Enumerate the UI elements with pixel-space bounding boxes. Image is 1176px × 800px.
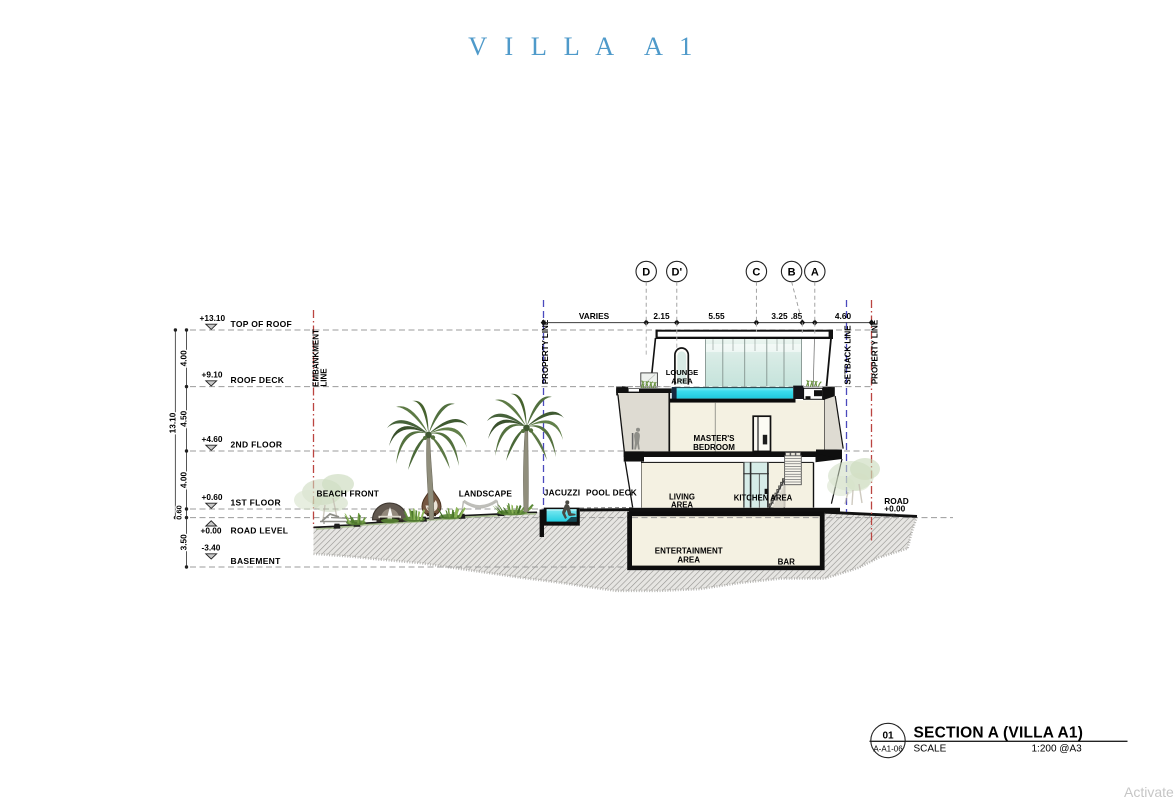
svg-text:JACUZZI: JACUZZI — [544, 488, 580, 498]
svg-text:ROAD LEVEL: ROAD LEVEL — [231, 526, 289, 536]
svg-text:4.60: 4.60 — [835, 311, 852, 321]
svg-text:KITCHEN AREA: KITCHEN AREA — [734, 494, 793, 503]
svg-text:0.60: 0.60 — [175, 505, 184, 519]
svg-text:Activate W: Activate W — [1124, 784, 1176, 800]
svg-text:SETBACK LINE: SETBACK LINE — [844, 325, 853, 385]
svg-text:1:200 @A3: 1:200 @A3 — [1032, 744, 1083, 755]
svg-text:+13.10: +13.10 — [200, 313, 226, 323]
svg-text:AREA: AREA — [671, 500, 693, 509]
svg-text:3.50: 3.50 — [179, 534, 189, 551]
svg-text:MASTER'S: MASTER'S — [693, 434, 735, 443]
svg-text:4.00: 4.00 — [179, 472, 189, 489]
svg-text:BAR: BAR — [778, 557, 796, 566]
svg-text:4.00: 4.00 — [179, 350, 189, 367]
svg-text:V I L L A A 1: V I L L A A 1 — [468, 31, 698, 61]
svg-text:BEACH FRONT: BEACH FRONT — [317, 488, 380, 498]
svg-text:SECTION A (VILLA A1): SECTION A (VILLA A1) — [914, 724, 1084, 741]
svg-text:PROPERTY LINE: PROPERTY LINE — [541, 319, 550, 384]
svg-text:+0.00: +0.00 — [201, 526, 222, 536]
svg-text:SCALE: SCALE — [914, 744, 947, 755]
svg-text:PROPERTY LINE: PROPERTY LINE — [871, 319, 880, 384]
svg-text:1ST FLOOR: 1ST FLOOR — [231, 497, 281, 507]
svg-text:-3.40: -3.40 — [202, 542, 221, 552]
svg-text:BEDROOM: BEDROOM — [693, 443, 735, 452]
svg-text:3.25: 3.25 — [771, 311, 788, 321]
svg-text:VARIES: VARIES — [579, 311, 610, 321]
svg-text:BASEMENT: BASEMENT — [231, 556, 282, 566]
svg-text:4.50: 4.50 — [179, 410, 189, 427]
svg-text:AREA: AREA — [677, 555, 700, 564]
svg-text:D: D — [642, 267, 650, 279]
svg-text:LANDSCAPE: LANDSCAPE — [459, 488, 513, 498]
svg-text:AREA: AREA — [671, 377, 693, 386]
svg-text:D': D' — [672, 267, 683, 279]
svg-text:A: A — [811, 267, 819, 279]
svg-text:+0.00: +0.00 — [884, 504, 905, 514]
svg-text:2.15: 2.15 — [653, 311, 670, 321]
svg-text:LINE: LINE — [320, 368, 329, 387]
svg-text:B: B — [788, 267, 796, 279]
svg-text:5.55: 5.55 — [708, 311, 725, 321]
svg-text:C: C — [752, 267, 760, 279]
svg-text:ROOF DECK: ROOF DECK — [231, 375, 285, 385]
svg-text:2ND FLOOR: 2ND FLOOR — [231, 439, 283, 449]
svg-text:+4.60: +4.60 — [202, 434, 223, 444]
svg-text:ENTERTAINMENT: ENTERTAINMENT — [655, 547, 723, 556]
svg-text:13.10: 13.10 — [167, 412, 177, 433]
svg-text:A-A1-06: A-A1-06 — [873, 744, 903, 753]
svg-text:TOP OF ROOF: TOP OF ROOF — [231, 319, 293, 329]
svg-text:+9.10: +9.10 — [202, 369, 223, 379]
svg-text:01: 01 — [882, 731, 894, 742]
svg-text:+0.60: +0.60 — [202, 492, 223, 502]
svg-text:POOL DECK: POOL DECK — [586, 488, 637, 498]
